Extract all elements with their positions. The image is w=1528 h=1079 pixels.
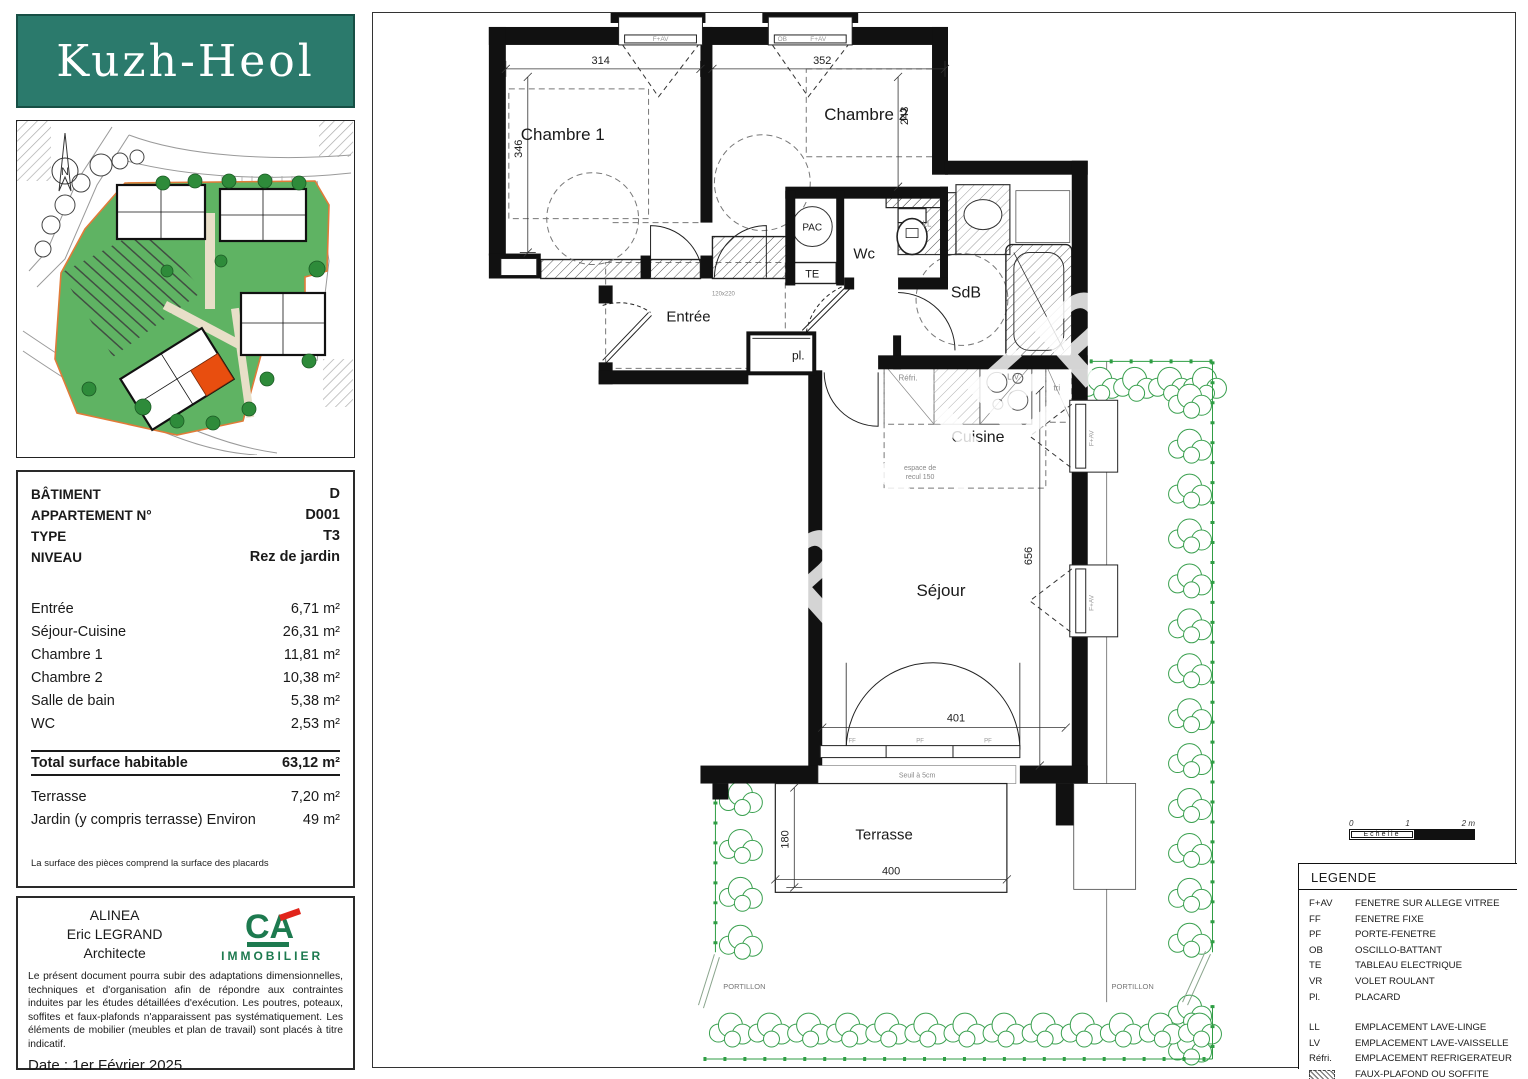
svg-text:PF: PF xyxy=(984,739,992,745)
legend-row: LLEMPLACEMENT LAVE-LINGE xyxy=(1309,1020,1517,1036)
legend-row: LVEMPLACEMENT LAVE-VAISSELLE xyxy=(1309,1036,1517,1052)
road-hatch xyxy=(323,359,353,407)
room-area-row: WC2,53 m² xyxy=(31,713,340,736)
portillon-label: PORTILLON xyxy=(723,982,765,991)
legend-row: F+AVFENETRE SUR ALLEGE VITREE xyxy=(1309,896,1517,912)
shrub-icon xyxy=(719,829,762,863)
shrub-icon xyxy=(1169,789,1212,823)
info-row: APPARTEMENT N°D001 xyxy=(31,505,340,526)
architect-panel: ALINEA Eric LEGRAND Architecte CA IMMOBI… xyxy=(16,896,355,1070)
shrub-icon xyxy=(788,1013,831,1047)
room-label-sdb: SdB xyxy=(951,284,981,301)
apartment-info-panel: BÂTIMENTD APPARTEMENT N°D001 TYPET3 NIVE… xyxy=(16,470,355,888)
architect-names: ALINEA Eric LEGRAND Architecte xyxy=(28,906,201,963)
portillon-gates xyxy=(698,951,1210,1008)
outdoor-row: Jardin (y compris terrasse) Environ49 m² xyxy=(31,809,340,832)
road-hatch xyxy=(319,121,353,157)
shrub-icon xyxy=(719,925,762,959)
shrub-icon xyxy=(1169,429,1212,463)
shrub-icon xyxy=(1169,519,1212,553)
ca-immobilier-logo-icon: CA IMMOBILIER xyxy=(201,906,343,963)
shrub-icon xyxy=(719,877,762,911)
room-area-row: Chambre 111,81 m² xyxy=(31,644,340,667)
faux-plafond-hatch-icon xyxy=(1309,1070,1335,1079)
shrub-icon xyxy=(1169,474,1212,508)
svg-text:F+AV: F+AV xyxy=(1089,594,1096,611)
outdoor-row: Terrasse7,20 m² xyxy=(31,786,340,809)
svg-text:N: N xyxy=(61,166,69,178)
svg-text:OB: OB xyxy=(778,36,787,43)
shrub-icon xyxy=(709,1013,752,1047)
floor-plan-sheet: PORTILLON PORTILLON xyxy=(372,12,1516,1068)
svg-text:Réfri.: Réfri. xyxy=(899,373,918,382)
room-area-row: Séjour-Cuisine26,31 m² xyxy=(31,621,340,644)
info-row: BÂTIMENTD xyxy=(31,484,340,505)
shrub-icon xyxy=(1061,1013,1104,1047)
svg-text:180: 180 xyxy=(779,830,791,848)
pac-label: PAC xyxy=(802,223,822,234)
shrub-icon xyxy=(1169,609,1212,643)
shrub-icon xyxy=(1022,1013,1065,1047)
svg-text:314: 314 xyxy=(591,55,609,67)
portillon-label: PORTILLON xyxy=(1112,982,1154,991)
room-label-chambre1: Chambre 1 xyxy=(521,125,605,144)
shrub-icon xyxy=(1169,833,1212,867)
soffite-hatches xyxy=(541,237,789,279)
svg-text:FF: FF xyxy=(849,739,857,745)
svg-text:400: 400 xyxy=(882,865,900,877)
room-label-wc: Wc xyxy=(853,246,875,263)
shrub-icon xyxy=(827,1013,870,1047)
legend-row: PFPORTE-FENETRE xyxy=(1309,927,1517,943)
legend-row: Réfri.EMPLACEMENT REFRIGERATEUR xyxy=(1309,1051,1517,1067)
total-surface-row: Total surface habitable63,12 m² xyxy=(31,750,340,776)
seuil-label: Seuil à 5cm xyxy=(899,773,936,780)
shrub-icon xyxy=(866,1013,909,1047)
svg-text:PF: PF xyxy=(916,739,924,745)
legend-row: OBOSCILLO-BATTANT xyxy=(1309,943,1517,959)
room-area-row: Entrée6,71 m² xyxy=(31,598,340,621)
legend-panel: LEGENDE F+AVFENETRE SUR ALLEGE VITREE FF… xyxy=(1298,863,1517,1069)
plan-date: Date : 1er Février 2025 xyxy=(28,1057,343,1074)
shrub-icon xyxy=(1169,878,1212,912)
plan-page: Kuzh-Heol xyxy=(0,0,1528,1079)
project-title: Kuzh-Heol xyxy=(56,36,315,87)
room-label-terrasse: Terrasse xyxy=(855,826,912,843)
site-plan: N xyxy=(16,120,355,458)
shrub-icon xyxy=(983,1013,1026,1047)
svg-text:LL: LL xyxy=(923,220,932,229)
shrub-icon xyxy=(944,1013,987,1047)
scale-label: Echelle xyxy=(1351,831,1413,838)
te-label: TE xyxy=(805,268,819,280)
shrub-icon xyxy=(1169,654,1212,688)
shrub-icon xyxy=(1100,1013,1143,1047)
legend-row: VRVOLET ROULANT xyxy=(1309,974,1517,990)
svg-text:401: 401 xyxy=(947,713,965,725)
info-row: NIVEAURez de jardin xyxy=(31,547,340,568)
shrub-icon xyxy=(1169,564,1212,598)
svg-text:656: 656 xyxy=(1023,547,1035,565)
svg-text:F+AV: F+AV xyxy=(1089,430,1096,447)
shrub-icon xyxy=(1169,744,1212,778)
room-area-row: Chambre 210,38 m² xyxy=(31,667,340,690)
project-logo: Kuzh-Heol xyxy=(16,14,355,108)
room-label-entree: Entrée xyxy=(666,308,710,325)
shrub-icon xyxy=(749,1013,792,1047)
placard-label: pl. xyxy=(792,348,805,362)
disclaimer-text: Le présent document pourra subir des ada… xyxy=(28,970,343,1051)
legend-row: TETABLEAU ELECTRIQUE xyxy=(1309,958,1517,974)
svg-text:F+AV: F+AV xyxy=(810,36,827,43)
scale-bar: 0 1 2 m Echelle xyxy=(1349,819,1475,849)
terrasse-outline xyxy=(775,784,1135,893)
room-area-row: Salle de bain5,38 m² xyxy=(31,690,340,713)
shrub-icon xyxy=(1169,699,1212,733)
legend-title: LEGENDE xyxy=(1309,868,1517,889)
info-row: TYPET3 xyxy=(31,526,340,547)
site-plan-drawing: N xyxy=(17,121,353,455)
road-hatch xyxy=(17,121,51,181)
legend-row: FFFENETRE FIXE xyxy=(1309,912,1517,928)
svg-text:352: 352 xyxy=(813,55,831,67)
shrub-icon xyxy=(905,1013,948,1047)
legend-row: FAUX-PLAFOND OU SOFFITE xyxy=(1309,1067,1517,1079)
room-label-chambre2: Chambre 2 xyxy=(824,105,908,124)
legend-row: Pl.PLACARD xyxy=(1309,990,1517,1006)
svg-text:F+AV: F+AV xyxy=(653,36,670,43)
wall-niche xyxy=(501,259,537,276)
surface-footnote: La surface des pièces comprend la surfac… xyxy=(31,858,340,869)
svg-text:120x220: 120x220 xyxy=(712,291,736,297)
room-label-sejour: Séjour xyxy=(916,581,965,600)
